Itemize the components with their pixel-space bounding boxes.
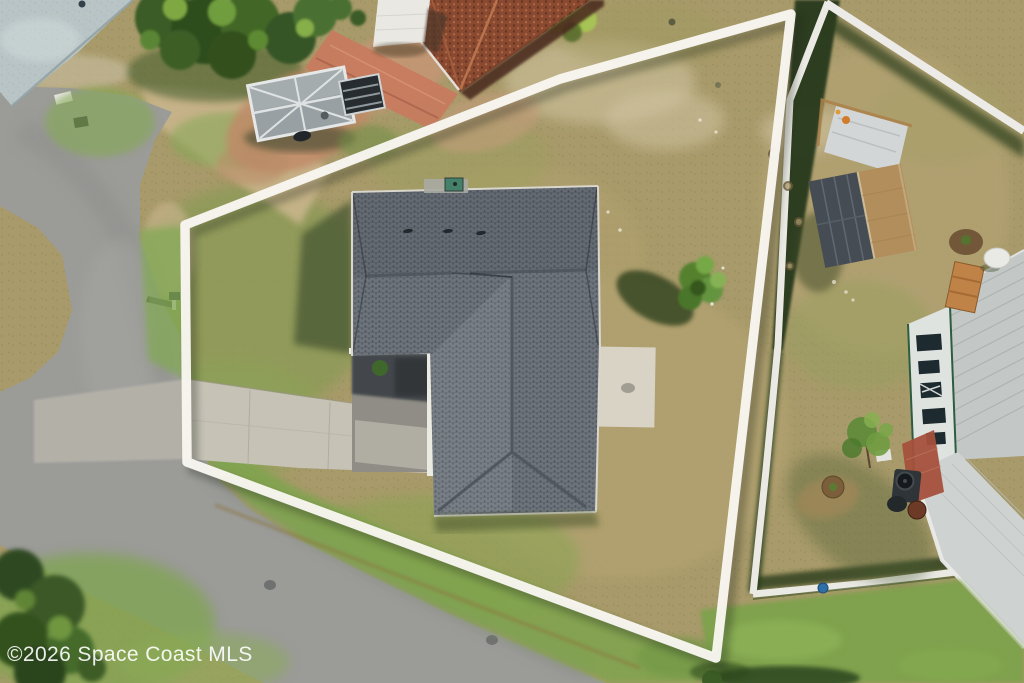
watermark-text: ©2026 Space Coast MLS bbox=[7, 643, 253, 666]
blue-bucket bbox=[818, 583, 828, 593]
orange-item bbox=[842, 116, 850, 124]
neighbor-shed bbox=[808, 164, 917, 268]
round-table bbox=[984, 248, 1010, 268]
aerial-photo-canvas: ©2026 Space Coast MLS bbox=[0, 0, 1024, 683]
shed-doorway-steps bbox=[339, 74, 385, 115]
carport-alcove bbox=[349, 348, 433, 476]
aerial-photo: ©2026 Space Coast MLS bbox=[0, 0, 1024, 683]
planter-pot bbox=[908, 501, 926, 519]
